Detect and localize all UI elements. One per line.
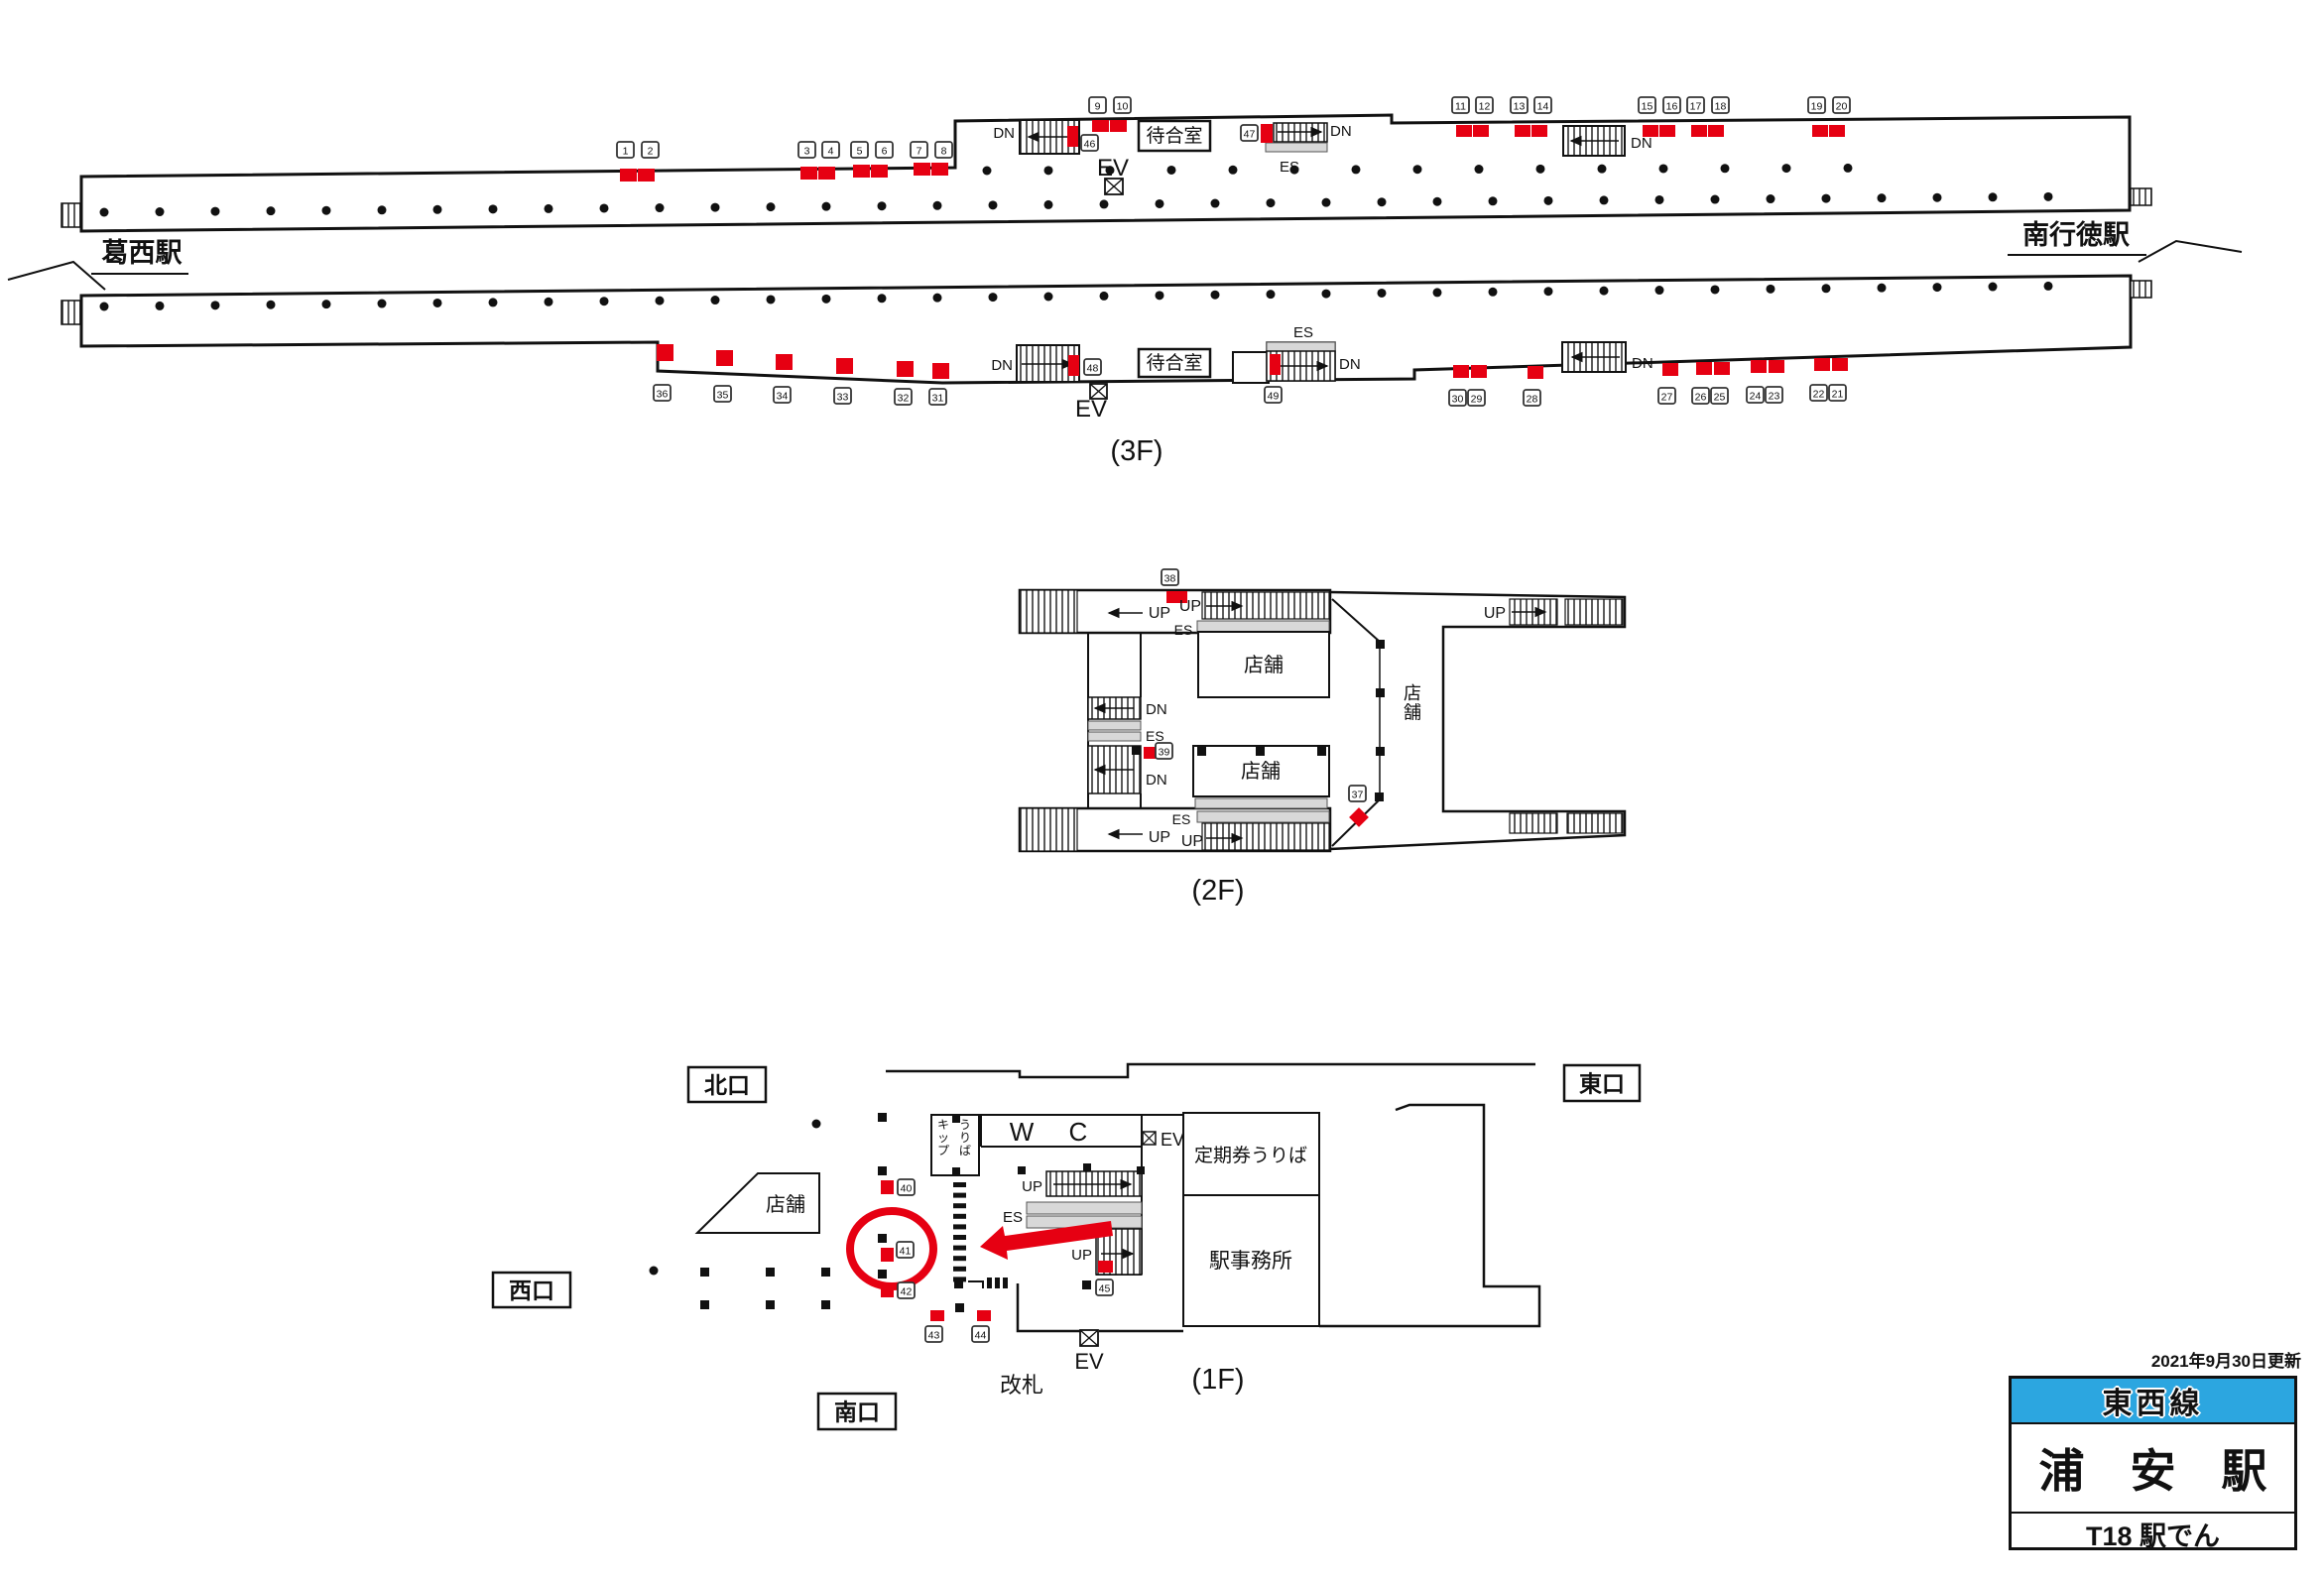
shop-2f-2-belt xyxy=(1195,798,1327,808)
svg-text:49: 49 xyxy=(1268,391,1280,403)
ad-mark-34 xyxy=(776,354,793,370)
ad-mark-8 xyxy=(931,163,948,176)
label-dn-3f-up-esc: DN xyxy=(1330,123,1352,140)
ad-position-36: 36 xyxy=(654,385,671,401)
ad-mark-16 xyxy=(1659,125,1675,137)
label-floor-3f: (3F) xyxy=(1110,435,1162,467)
ad-mark-17 xyxy=(1691,125,1707,137)
ad-position-39: 39 xyxy=(1156,743,1172,759)
ad-position-48: 48 xyxy=(1084,359,1101,375)
ad-position-41: 41 xyxy=(897,1242,914,1258)
exit-box-south-exit: 南口 xyxy=(818,1394,896,1429)
label-wc-1f: W C xyxy=(1010,1117,1102,1147)
stairs-2f-right-bottom xyxy=(1510,813,1557,833)
ad-position-27: 27 xyxy=(1658,388,1675,404)
ad-position-35: 35 xyxy=(714,386,731,402)
ad-position-19: 19 xyxy=(1808,97,1825,113)
svg-text:30: 30 xyxy=(1452,394,1464,406)
ad-mark-10 xyxy=(1110,120,1127,132)
ad-position-11: 11 xyxy=(1452,97,1469,113)
elevator-1f-south-icon xyxy=(1080,1330,1098,1346)
stairs-3f-lower-right-dn xyxy=(1562,342,1626,372)
label-es-2f-top: ES xyxy=(1174,622,1193,638)
svg-text:7: 7 xyxy=(917,146,922,158)
svg-text:3: 3 xyxy=(804,146,810,158)
ticket-gate-line xyxy=(953,1182,966,1281)
ad-mark-47 xyxy=(1261,124,1273,143)
svg-text:23: 23 xyxy=(1769,391,1780,403)
walls-1f-south xyxy=(1018,1283,1080,1331)
ad-position-4: 4 xyxy=(822,142,839,158)
svg-text:6: 6 xyxy=(882,146,888,158)
svg-text:25: 25 xyxy=(1714,392,1726,404)
label-ticket-col2: うりば xyxy=(959,1118,971,1157)
ad-position-37: 37 xyxy=(1349,786,1366,801)
label-commuter-pass-office: 定期券うりば xyxy=(1194,1145,1307,1166)
label-up-2f-topleft: UP xyxy=(1149,605,1170,622)
svg-text:33: 33 xyxy=(837,392,849,404)
ad-position-26: 26 xyxy=(1692,388,1709,404)
walls-1f-east xyxy=(1319,1105,1539,1326)
label-up-2f-topright: UP xyxy=(1179,598,1201,615)
station-sign: 東西線 浦 安 駅 T18 駅でん xyxy=(2009,1376,2297,1550)
ad-mark-49 xyxy=(1270,354,1281,375)
label-ev-3f-up: EV xyxy=(1097,155,1129,182)
label-dn-3f-up-right: DN xyxy=(1631,135,1652,152)
label-gate-1f: 改札 xyxy=(1000,1373,1043,1398)
escalator-2f-bottom-belt xyxy=(1197,811,1329,822)
label-ev-1f-wc: EV xyxy=(1161,1130,1184,1150)
ad-position-7: 7 xyxy=(911,142,927,158)
svg-text:南口: 南口 xyxy=(834,1400,880,1425)
svg-text:37: 37 xyxy=(1352,790,1364,801)
station-sign-name: 浦 安 駅 xyxy=(2012,1424,2294,1512)
stairs-3f-upper-right-dn xyxy=(1563,126,1625,156)
label-floor-2f: (2F) xyxy=(1191,875,1244,907)
label-es-3f-low: ES xyxy=(1293,324,1313,341)
svg-text:46: 46 xyxy=(1084,139,1096,151)
exit-box-north-exit: 北口 xyxy=(688,1067,766,1102)
svg-text:9: 9 xyxy=(1095,101,1101,113)
svg-text:2: 2 xyxy=(648,146,654,158)
svg-text:15: 15 xyxy=(1642,101,1653,113)
ad-position-40: 40 xyxy=(898,1179,915,1195)
ad-mark-20 xyxy=(1829,125,1845,137)
ad-position-22: 22 xyxy=(1810,385,1827,401)
ad-mark-44 xyxy=(977,1310,991,1321)
svg-text:41: 41 xyxy=(900,1246,912,1258)
svg-text:31: 31 xyxy=(932,393,944,405)
ad-position-5: 5 xyxy=(851,142,868,158)
stairs-2f-right-bottom2 xyxy=(1567,813,1623,833)
label-waiting-room-3f-up: 待合室 xyxy=(1146,125,1202,147)
svg-text:14: 14 xyxy=(1537,101,1549,113)
ad-mark-24 xyxy=(1751,360,1767,373)
ad-position-33: 33 xyxy=(834,388,851,404)
svg-text:20: 20 xyxy=(1836,101,1848,113)
ad-mark-22 xyxy=(1814,358,1830,371)
ad-mark-40 xyxy=(881,1180,894,1194)
floor-2f-concourse xyxy=(1020,590,1625,851)
ad-position-43: 43 xyxy=(925,1326,942,1342)
label-es-3f-up: ES xyxy=(1280,159,1299,176)
ad-position-12: 12 xyxy=(1476,97,1493,113)
ad-position-45: 45 xyxy=(1096,1279,1113,1295)
stairs-1f-upper-up xyxy=(1046,1171,1142,1196)
station-floor-diagram: 1234567891011121314151617181920212223242… xyxy=(0,0,2324,1583)
svg-text:39: 39 xyxy=(1159,747,1170,759)
stairs-2f-botleft xyxy=(1020,808,1077,851)
ad-position-46: 46 xyxy=(1081,135,1098,151)
svg-text:19: 19 xyxy=(1811,101,1823,113)
ad-mark-39 xyxy=(1144,747,1156,759)
station-sign-code: T18 駅でん xyxy=(2012,1512,2294,1553)
svg-text:13: 13 xyxy=(1514,101,1526,113)
ad-position-34: 34 xyxy=(774,387,791,403)
label-waiting-room-3f-low: 待合室 xyxy=(1146,352,1202,374)
ad-mark-23 xyxy=(1769,360,1784,373)
ad-position-28: 28 xyxy=(1524,390,1540,406)
ad-position-21: 21 xyxy=(1829,385,1846,401)
ad-mark-25 xyxy=(1714,362,1730,375)
ad-mark-36 xyxy=(657,344,673,361)
label-station-office: 駅事務所 xyxy=(1209,1250,1292,1273)
svg-text:35: 35 xyxy=(717,390,729,402)
svg-text:8: 8 xyxy=(941,146,947,158)
svg-text:17: 17 xyxy=(1690,101,1702,113)
ad-mark-13 xyxy=(1515,125,1530,137)
ad-position-29: 29 xyxy=(1468,390,1485,406)
ad-position-18: 18 xyxy=(1712,97,1729,113)
label-dn-2f-mid1: DN xyxy=(1146,701,1167,718)
label-shop-2f-2: 店舗 xyxy=(1241,760,1281,783)
ad-mark-18 xyxy=(1708,125,1724,137)
svg-text:40: 40 xyxy=(901,1183,913,1195)
stairs-2f-topleft xyxy=(1020,590,1077,633)
ad-position-8: 8 xyxy=(935,142,952,158)
room-3f-lower-unlabeled xyxy=(1233,352,1269,383)
label-floor-1f: (1F) xyxy=(1191,1364,1244,1396)
label-dn-3f-up-left: DN xyxy=(993,125,1015,142)
ad-mark-14 xyxy=(1531,125,1547,137)
svg-text:西口: 西口 xyxy=(509,1278,554,1303)
label-shop-2f-right: 店舗 xyxy=(1404,683,1421,722)
svg-text:34: 34 xyxy=(777,391,789,403)
label-es-1f: ES xyxy=(1003,1209,1023,1226)
svg-text:5: 5 xyxy=(857,146,863,158)
ad-position-17: 17 xyxy=(1687,97,1704,113)
ad-mark-32 xyxy=(897,361,914,377)
ad-mark-21 xyxy=(1832,358,1848,371)
ad-mark-29 xyxy=(1471,365,1487,378)
ad-mark-1 xyxy=(620,169,637,182)
label-up-2f-right: UP xyxy=(1484,605,1506,622)
svg-text:1: 1 xyxy=(623,146,629,158)
svg-text:42: 42 xyxy=(901,1286,913,1298)
exit-box-east-exit: 東口 xyxy=(1564,1065,1640,1101)
svg-text:18: 18 xyxy=(1715,101,1727,113)
svg-text:28: 28 xyxy=(1527,394,1538,406)
label-kasai-station: 葛西駅 xyxy=(102,238,183,268)
escalator-2f-bottom xyxy=(1202,823,1329,850)
svg-text:45: 45 xyxy=(1099,1283,1111,1295)
ad-position-25: 25 xyxy=(1711,388,1728,404)
ad-mark-2 xyxy=(638,169,655,182)
svg-text:32: 32 xyxy=(898,393,910,405)
svg-text:24: 24 xyxy=(1750,391,1762,403)
ad-position-49: 49 xyxy=(1265,387,1282,403)
escalator-3f-upper xyxy=(1266,123,1327,152)
ad-mark-46 xyxy=(1067,126,1078,147)
walls-2f-right xyxy=(1330,592,1625,849)
ad-position-47: 47 xyxy=(1241,125,1258,141)
label-up-1f-upper: UP xyxy=(1022,1178,1042,1195)
ad-mark-48 xyxy=(1068,355,1079,376)
ad-position-31: 31 xyxy=(929,389,946,405)
ad-mark-26 xyxy=(1696,362,1712,375)
svg-text:48: 48 xyxy=(1087,363,1099,375)
svg-text:44: 44 xyxy=(975,1330,987,1342)
label-dn-3f-low-right: DN xyxy=(1632,355,1653,372)
svg-text:11: 11 xyxy=(1455,101,1466,113)
station-sign-line: 東西線 xyxy=(2012,1379,2294,1424)
ad-mark-6 xyxy=(871,165,888,178)
label-es-2f-mid: ES xyxy=(1146,728,1164,744)
ad-mark-42 xyxy=(881,1283,894,1297)
ad-position-42: 42 xyxy=(898,1282,915,1298)
label-up-1f-lower: UP xyxy=(1071,1247,1092,1264)
ad-position-38: 38 xyxy=(1162,569,1178,585)
label-ev-3f-low: EV xyxy=(1075,396,1107,423)
svg-text:27: 27 xyxy=(1661,392,1673,404)
ad-position-32: 32 xyxy=(895,389,912,405)
svg-text:29: 29 xyxy=(1471,394,1483,406)
label-shop-2f-1: 店舗 xyxy=(1244,654,1284,676)
svg-text:21: 21 xyxy=(1832,389,1844,401)
svg-text:12: 12 xyxy=(1479,101,1491,113)
label-ticket-col1: キップ xyxy=(937,1118,949,1157)
ad-mark-41 xyxy=(881,1248,894,1262)
ad-mark-5 xyxy=(853,165,870,178)
ad-mark-28 xyxy=(1528,366,1543,379)
ad-position-23: 23 xyxy=(1766,387,1782,403)
label-shop-1f: 店舗 xyxy=(766,1193,805,1216)
label-minamigyotoku-station: 南行徳駅 xyxy=(2022,219,2130,250)
ad-mark-37 xyxy=(1349,807,1369,827)
ad-mark-45 xyxy=(1098,1261,1113,1273)
ad-position-14: 14 xyxy=(1534,97,1551,113)
elevator-1f-wc-icon xyxy=(1143,1132,1156,1145)
label-up-2f-botright: UP xyxy=(1181,833,1203,850)
ad-mark-35 xyxy=(716,350,733,366)
ad-position-20: 20 xyxy=(1833,97,1850,113)
ad-mark-30 xyxy=(1453,365,1469,378)
ad-mark-3 xyxy=(800,167,817,180)
label-ev-1f-south: EV xyxy=(1074,1349,1104,1374)
ad-mark-7 xyxy=(914,163,930,176)
ad-mark-12 xyxy=(1473,125,1489,137)
label-dn-3f-low-left: DN xyxy=(991,357,1013,374)
ad-mark-27 xyxy=(1662,363,1678,376)
svg-text:北口: 北口 xyxy=(704,1072,750,1098)
ad-position-9: 9 xyxy=(1089,97,1106,113)
svg-text:16: 16 xyxy=(1666,101,1678,113)
ad-position-15: 15 xyxy=(1639,97,1655,113)
escalator-2f-top-belt xyxy=(1197,621,1329,632)
ad-position-30: 30 xyxy=(1449,390,1466,406)
svg-text:10: 10 xyxy=(1117,101,1129,113)
svg-text:東口: 東口 xyxy=(1579,1071,1625,1097)
svg-text:4: 4 xyxy=(828,146,834,158)
ad-mark-4 xyxy=(818,167,835,180)
stairs-2f-middle-block xyxy=(1088,633,1141,808)
ad-position-3: 3 xyxy=(798,142,815,158)
ad-position-24: 24 xyxy=(1747,387,1764,403)
ad-mark-9 xyxy=(1092,120,1109,132)
ad-position-2: 2 xyxy=(642,142,659,158)
label-es-2f-bot: ES xyxy=(1172,811,1191,827)
label-dn-2f-mid2: DN xyxy=(1146,772,1167,789)
label-dn-3f-low-esc: DN xyxy=(1339,356,1361,373)
escalator-1f xyxy=(1027,1202,1142,1228)
ad-position-1: 1 xyxy=(617,142,634,158)
updated-date: 2021年9月30日更新 xyxy=(2031,1347,2301,1372)
svg-text:47: 47 xyxy=(1244,129,1256,141)
label-up-2f-botleft: UP xyxy=(1149,829,1170,846)
walls-1f-north xyxy=(886,1064,1535,1077)
ad-mark-43 xyxy=(930,1310,944,1321)
svg-text:22: 22 xyxy=(1813,389,1825,401)
svg-text:43: 43 xyxy=(928,1330,940,1342)
svg-text:38: 38 xyxy=(1164,573,1176,585)
exit-box-west-exit: 西口 xyxy=(493,1273,570,1307)
ad-mark-19 xyxy=(1812,125,1828,137)
ad-position-10: 10 xyxy=(1114,97,1131,113)
ad-position-16: 16 xyxy=(1663,97,1680,113)
ad-mark-11 xyxy=(1456,125,1472,137)
ad-position-6: 6 xyxy=(876,142,893,158)
ad-mark-31 xyxy=(932,363,949,379)
ad-position-13: 13 xyxy=(1511,97,1528,113)
shop-2f-right-diagonal-top xyxy=(1332,599,1380,642)
ad-position-44: 44 xyxy=(972,1326,989,1342)
stairs-2f-right-top2 xyxy=(1565,599,1623,625)
svg-text:26: 26 xyxy=(1695,392,1707,404)
svg-text:36: 36 xyxy=(657,389,669,401)
ad-mark-33 xyxy=(836,358,853,374)
